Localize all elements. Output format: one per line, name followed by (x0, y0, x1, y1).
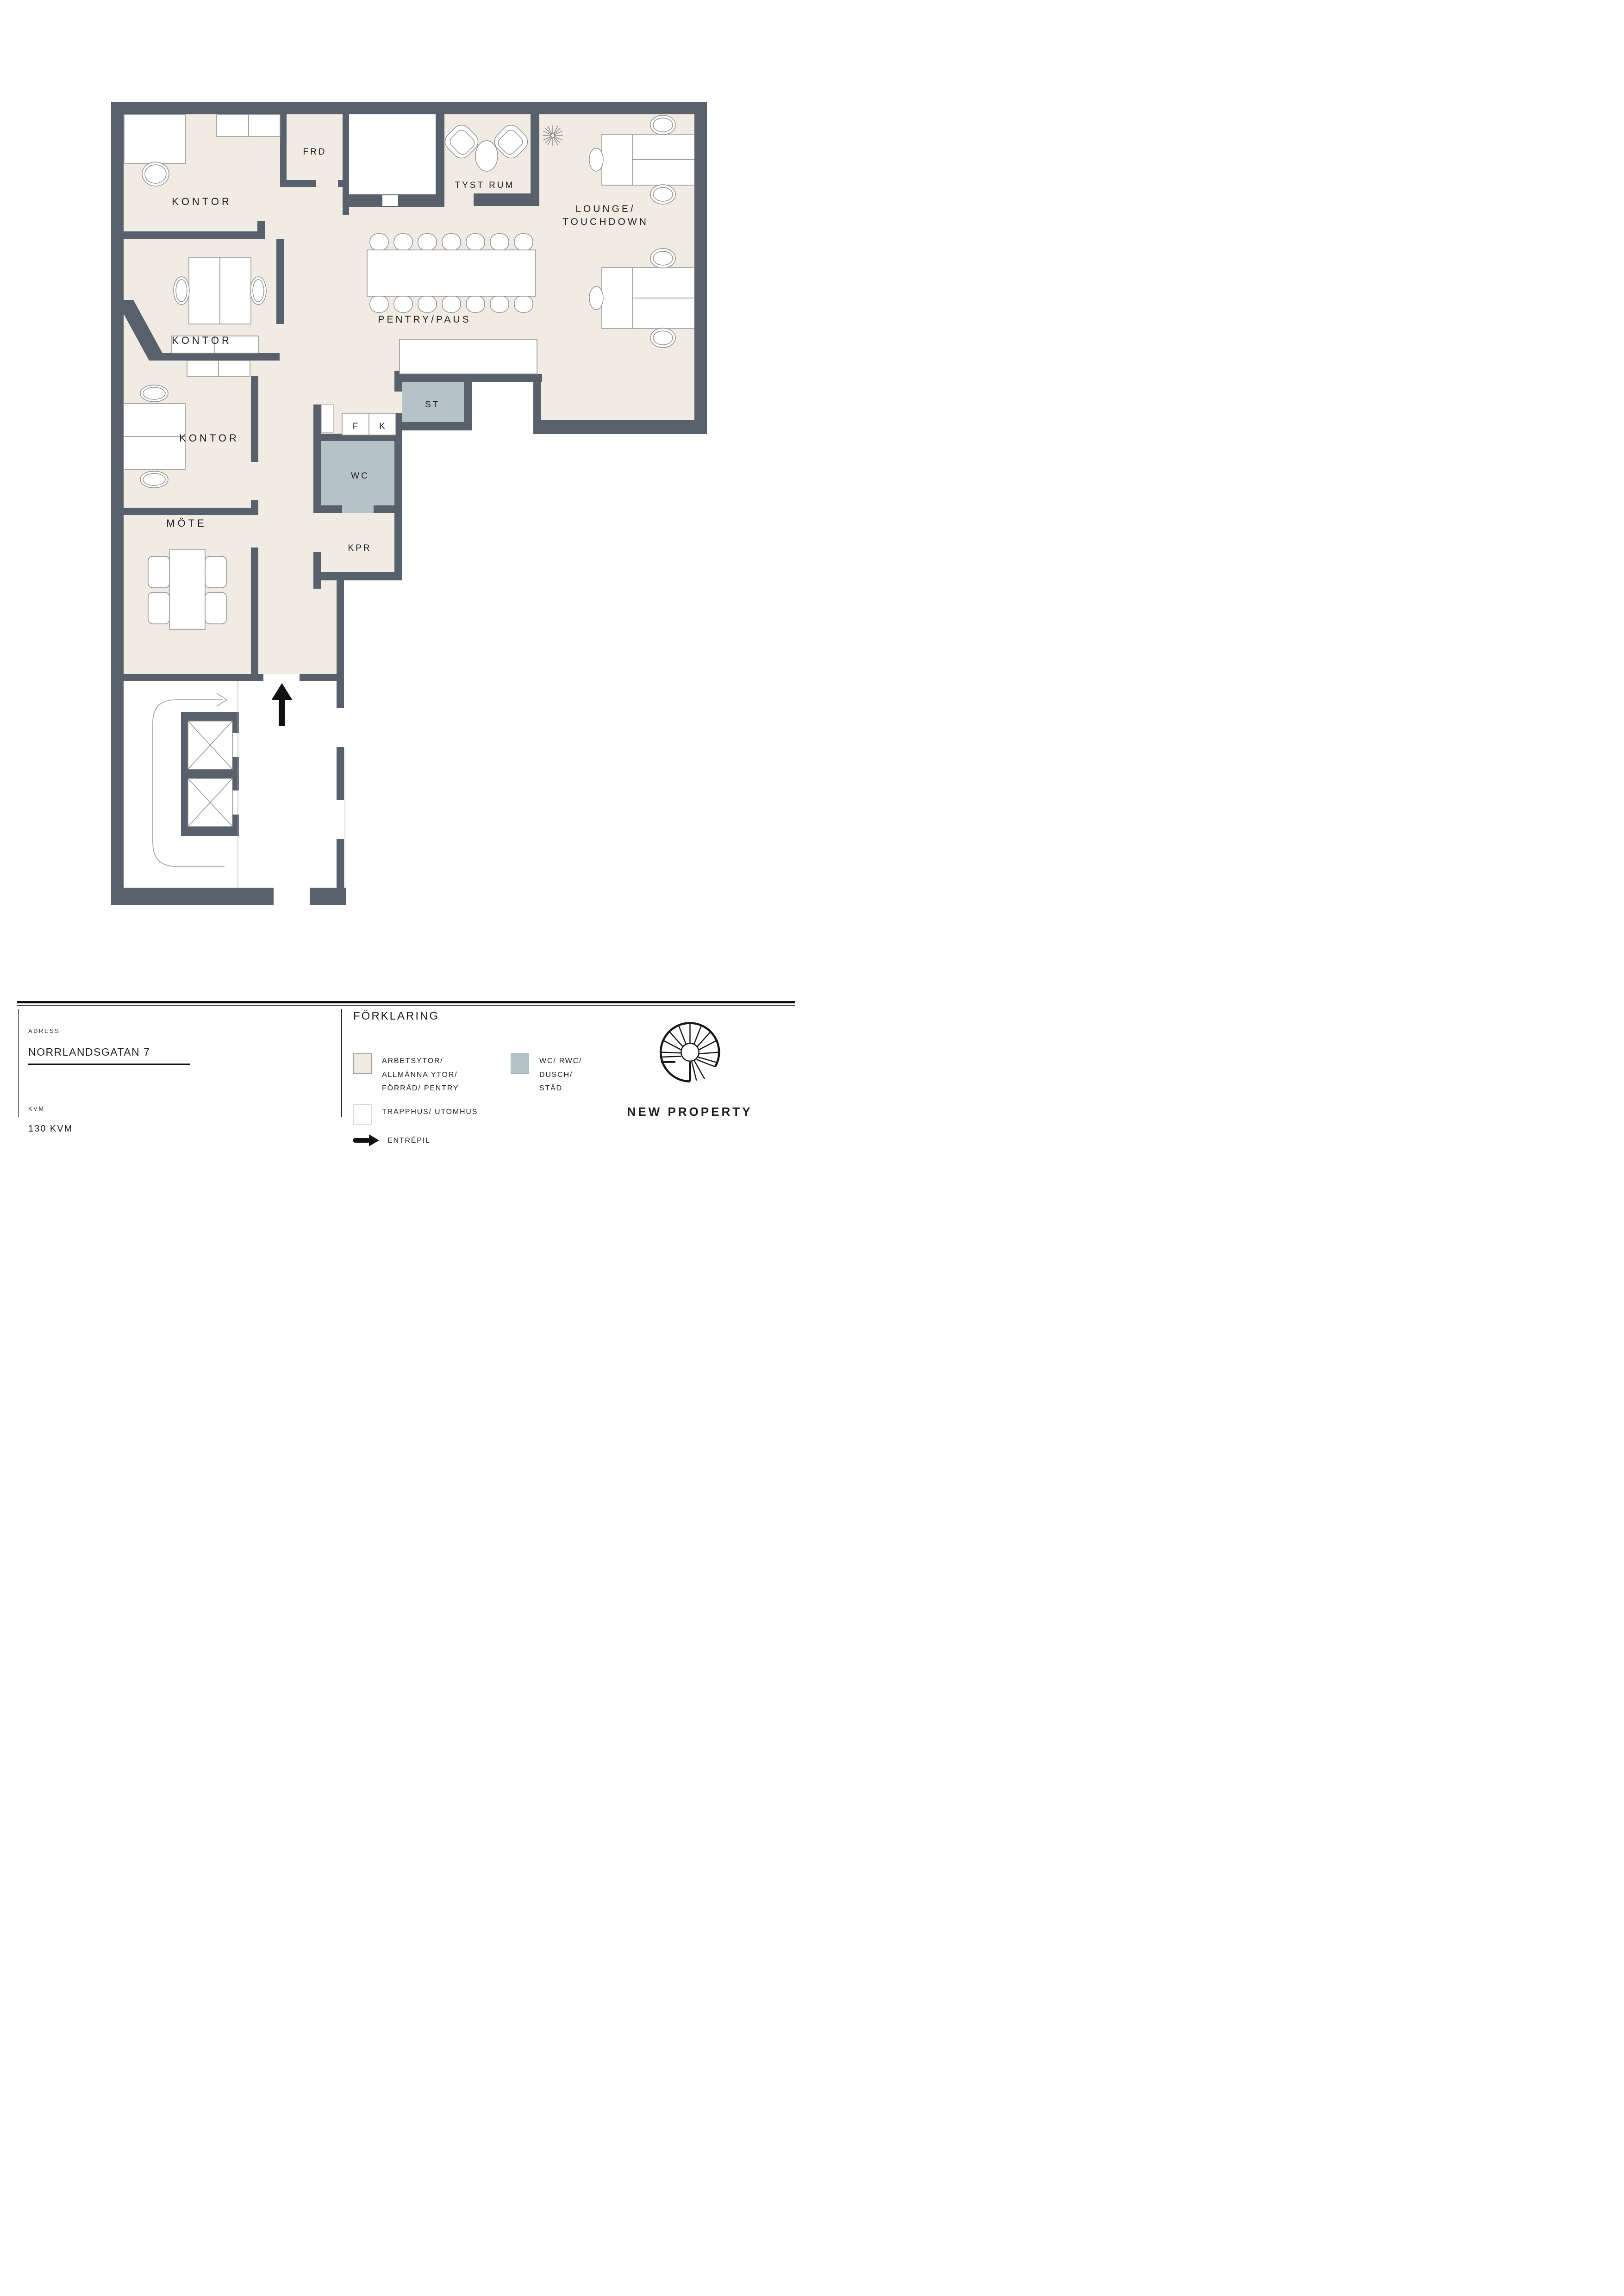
brand-name: NEW PROPERTY (620, 1105, 759, 1119)
wall-col-left-1 (313, 404, 321, 505)
wall-bottom-right (310, 888, 346, 905)
wall-wc-bottom-l (313, 505, 342, 513)
wall-under-counter (394, 374, 542, 382)
shaft-door-notch (382, 195, 398, 206)
wall-k3-right (251, 376, 258, 462)
wall-lounge-bottom (533, 420, 707, 434)
room-label-st: ST (425, 400, 440, 410)
stair-area-swatch (353, 1104, 372, 1125)
legend-item-stairwell: TRAPPHUS/ UTOMHUS (353, 1104, 478, 1125)
room-label-kpr: KPR (348, 543, 371, 553)
wall-tyst-bottom (474, 193, 539, 206)
chair-inner (145, 165, 166, 183)
chair (442, 234, 461, 250)
room-label-kontor-1: KONTOR (172, 196, 232, 207)
room-label-tyst-rum: TYST RUM (455, 180, 515, 190)
room-label-kontor-3: KONTOR (179, 432, 239, 444)
room-label-pentry: PENTRY/PAUS (378, 314, 471, 325)
chair (205, 556, 226, 588)
chair (394, 234, 412, 250)
cabinet (602, 134, 632, 185)
legend-item-label: TRAPPHUS/ UTOMHUS (382, 1104, 478, 1119)
wall-right (694, 114, 707, 434)
wall-col-left-2 (313, 552, 321, 589)
legend-item-label: ARBETSYTOR/ ALLMÄNNA YTOR/ FÖRRÅD/ PENTR… (382, 1053, 487, 1095)
wall-shaft-right (436, 114, 444, 207)
legend-item-label: ENTRÉPIL (387, 1133, 431, 1148)
chair (418, 296, 437, 312)
desk (632, 298, 694, 329)
kvm-value: 130 KVM (28, 1124, 73, 1134)
chair-inner (143, 473, 165, 485)
wall-corridor-bottom-r (300, 674, 337, 681)
chair (466, 296, 485, 312)
wc-door-gap (342, 505, 374, 513)
room-label-f: F (353, 422, 359, 431)
legend-title: FÖRKLARING (353, 1010, 439, 1023)
chair (442, 296, 461, 312)
divider-rule-thin (17, 1005, 795, 1006)
desk (220, 257, 251, 324)
wall-stair-right-1 (337, 580, 344, 708)
floorplan-svg: KONTOR KONTOR KONTOR MÖTE FRD TYST RUM L… (0, 0, 812, 1000)
room-label-lounge-1: LOUNGE/ (575, 204, 636, 214)
room-label-wc: WC (351, 471, 369, 481)
room-label-lounge-2: TOUCHDOWN (562, 217, 649, 227)
floorplan-page: KONTOR KONTOR KONTOR MÖTE FRD TYST RUM L… (0, 0, 812, 1148)
divider-vertical-mid (341, 1009, 342, 1117)
wall-st-bottom (394, 422, 472, 430)
legend-item-wet-areas: WC/ RWC/ DUSCH/ STÄD (511, 1053, 617, 1095)
wall-k2-right (276, 239, 284, 324)
chair-inner (653, 251, 673, 265)
wall-lift-bottom (181, 827, 239, 836)
wall-frd-bottom-l (280, 180, 316, 187)
legend-item-line1: WC/ RWC/ DUSCH/ (539, 1057, 582, 1079)
chair-inner (176, 280, 187, 302)
wall-k1-right (280, 114, 287, 187)
wall-lift-mid (181, 769, 239, 778)
chair (148, 592, 169, 624)
floorplan-drawing: KONTOR KONTOR KONTOR MÖTE FRD TYST RUM L… (0, 0, 812, 1000)
legend-item-line2: FÖRRÅD/ PENTRY (382, 1084, 459, 1092)
address-block: ADRESS NORRLANDSGATAN 7 KVM 130 KVM (28, 1009, 325, 1134)
desk (124, 115, 186, 163)
wall-top (111, 102, 707, 114)
legend-item-entry-arrow: ENTRÉPIL (353, 1133, 431, 1148)
legend-item-work-areas: ARBETSYTOR/ ALLMÄNNA YTOR/ FÖRRÅD/ PENTR… (353, 1053, 487, 1095)
entry-arrow-icon (353, 1134, 379, 1146)
desk (632, 268, 694, 298)
floor-lounge-lower (541, 374, 694, 420)
address-value: NORRLANDSGATAN 7 (28, 1046, 150, 1058)
chair (589, 148, 603, 171)
plant-icon (543, 125, 563, 146)
desk (189, 257, 220, 324)
desk (124, 404, 185, 436)
room-label-mote: MÖTE (166, 517, 207, 529)
legend-item-line1: ARBETSYTOR/ ALLMÄNNA YTOR/ (382, 1057, 457, 1079)
chair (490, 296, 509, 312)
cabinet (187, 361, 219, 376)
chair-inner (653, 331, 673, 345)
wet-area-swatch (511, 1053, 529, 1074)
chair (394, 296, 412, 312)
side-table (475, 141, 498, 171)
cabinet (217, 115, 249, 137)
wall-mote-top (124, 508, 251, 515)
desk (632, 134, 694, 160)
room-label-frd: FRD (303, 147, 326, 157)
chair (514, 234, 533, 250)
desk (632, 160, 694, 185)
cabinet (219, 361, 250, 376)
brand-block: NEW PROPERTY (620, 1015, 759, 1119)
chair (370, 296, 388, 312)
wall-corridor-bottom-l (111, 674, 263, 681)
fk-door-leaf (321, 404, 333, 432)
address-label: ADRESS (28, 1027, 60, 1034)
chair (148, 556, 169, 588)
chair-inner (653, 187, 673, 201)
chair (418, 234, 437, 250)
chair (514, 296, 533, 312)
divider-vertical-left (18, 1009, 19, 1117)
wall-stair-right-3 (337, 839, 344, 888)
wall-mote-right (251, 548, 258, 674)
wall-kpr-bottom (313, 572, 402, 580)
chair (370, 234, 388, 250)
chair (589, 286, 603, 310)
wall-step (533, 382, 541, 420)
desk (124, 436, 185, 469)
room-label-k: K (379, 422, 386, 431)
wall-bottom-left (124, 888, 274, 905)
work-area-swatch (353, 1053, 372, 1074)
cabinet (602, 268, 632, 329)
room-label-kontor-2: KONTOR (172, 335, 232, 346)
legend-item-line2: STÄD (539, 1084, 562, 1092)
entry-arrow (271, 683, 293, 726)
address-underline (28, 1064, 190, 1065)
wall-lift-top (181, 712, 239, 721)
legend-block: FÖRKLARING ARBETSYTOR/ ALLMÄNNA YTOR/ FÖ… (353, 1009, 612, 1143)
wall-k1-bottom (111, 231, 257, 239)
floor-shaft-room (349, 114, 436, 194)
chair-inner (653, 118, 673, 132)
wall-col-right-2 (394, 413, 402, 580)
wall-k2-bottom (153, 353, 280, 361)
kvm-label: KVM (28, 1105, 45, 1112)
chair-inner (253, 280, 264, 302)
chair-inner (143, 387, 165, 399)
legend-item-label: WC/ RWC/ DUSCH/ STÄD (539, 1053, 617, 1095)
chair (205, 592, 226, 624)
cabinet (249, 115, 280, 137)
divider-rule-thick (17, 1001, 795, 1003)
spiral-stair-logo-icon (650, 1015, 731, 1096)
wall-k3-right-stub (251, 500, 258, 515)
kitchen-counter (400, 339, 537, 374)
info-panel: ADRESS NORRLANDSGATAN 7 KVM 130 KVM FÖRK… (0, 1001, 812, 1148)
chair (490, 234, 509, 250)
wall-stair-right-2 (337, 747, 344, 800)
wall-k1-stub (257, 221, 265, 239)
pentry-table (367, 250, 536, 296)
chair (466, 234, 485, 250)
wall-tyst-right (531, 114, 539, 206)
meeting-table (169, 550, 205, 629)
